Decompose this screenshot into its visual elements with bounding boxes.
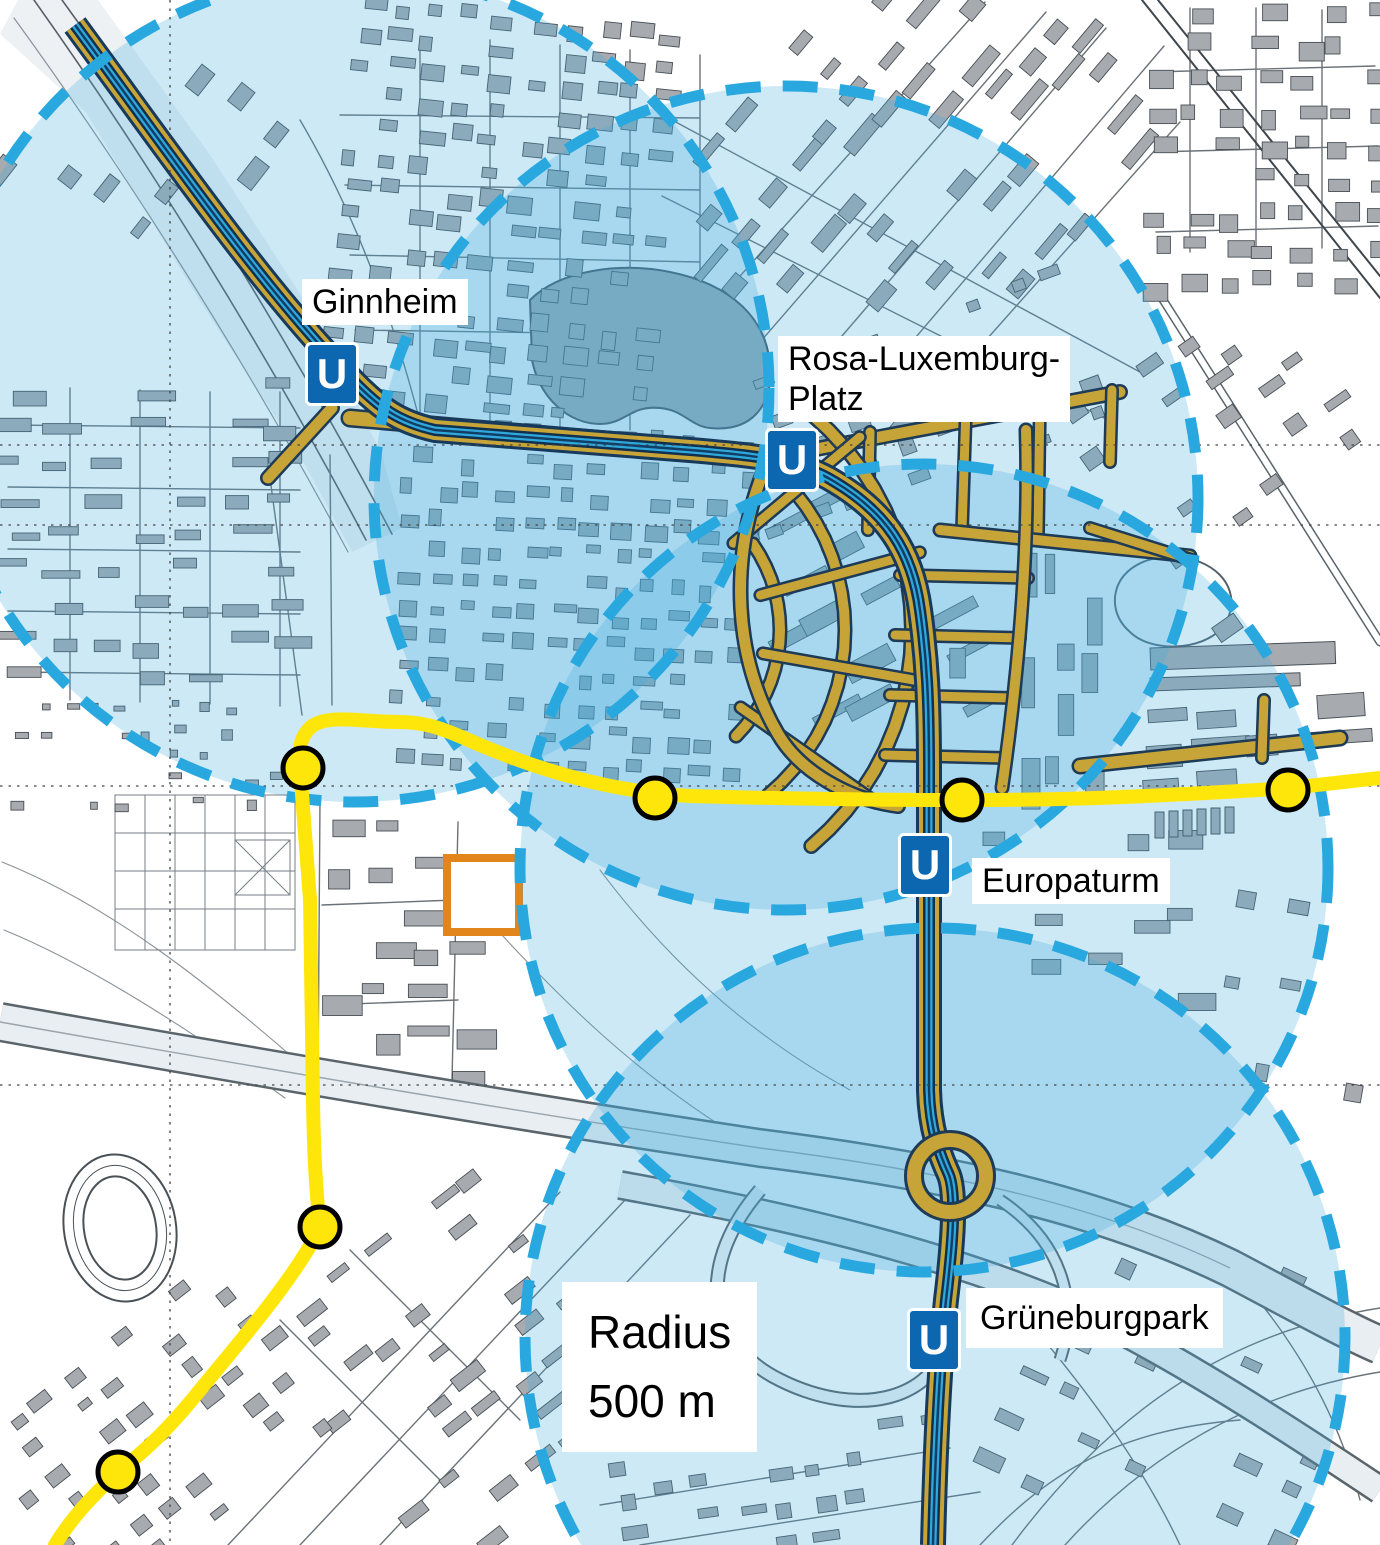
tram-stop [300,1207,340,1247]
station-label-line1: Rosa-Luxemburg- [788,339,1060,379]
station-label-grueneburgpark: Grüneburgpark [966,1288,1223,1348]
tram-stop [98,1452,138,1492]
tram-stop [635,778,675,818]
station-label-europaturm: Europaturm [972,858,1170,904]
ubahn-icon-ginnheim: U [305,342,359,406]
tram-stop [1268,770,1308,810]
radius-legend-line1: Radius [588,1298,731,1367]
highlighted-building [447,858,519,932]
radius-legend: Radius 500 m [562,1282,757,1452]
ubahn-icon-rosa-luxemburg-platz: U [765,428,819,492]
radius-legend-line2: 500 m [588,1367,731,1436]
map-canvas: Ginnheim U Rosa-Luxemburg- Platz U U Eur… [0,0,1380,1545]
ubahn-icon-europaturm: U [898,833,952,897]
tram-stop [283,748,323,788]
ubahn-icon-grueneburgpark: U [907,1308,961,1372]
station-label-ginnheim: Ginnheim [302,279,468,325]
station-label-rosa-luxemburg-platz: Rosa-Luxemburg- Platz [778,336,1070,422]
station-label-line2: Platz [788,379,1060,419]
tram-stop [942,780,982,820]
